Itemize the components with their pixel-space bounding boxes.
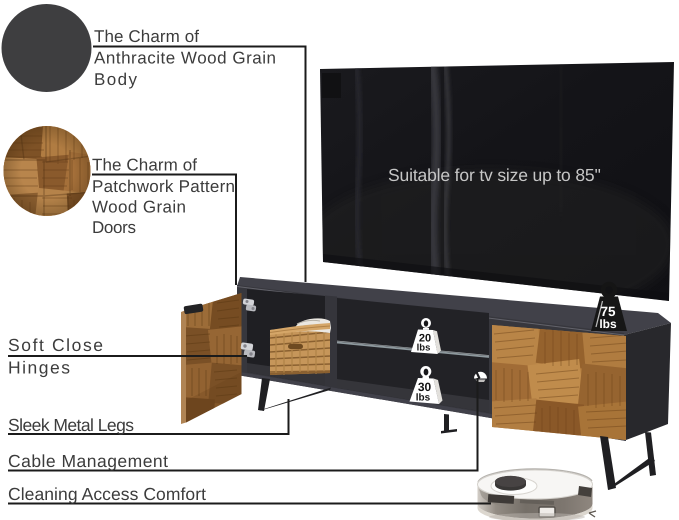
svg-text:Patchwork Pattern: Patchwork Pattern xyxy=(92,177,235,196)
svg-text:Wood Grain: Wood Grain xyxy=(92,198,186,217)
svg-text:Suitable for tv size up to 85': Suitable for tv size up to 85'' xyxy=(388,165,601,185)
svg-text:Cleaning Access Comfort: Cleaning Access Comfort xyxy=(8,484,206,504)
svg-text:Cable Management: Cable Management xyxy=(8,451,168,471)
svg-text:The Charm of: The Charm of xyxy=(94,27,199,46)
svg-text:Body: Body xyxy=(94,70,138,89)
svg-text:lbs: lbs xyxy=(417,343,431,354)
svg-text:Doors: Doors xyxy=(92,218,136,237)
svg-text:Sleek Metal Legs: Sleek Metal Legs xyxy=(8,415,134,435)
svg-text:lbs: lbs xyxy=(416,393,431,404)
svg-text:The Charm of: The Charm of xyxy=(92,156,197,175)
svg-text:Soft Close: Soft Close xyxy=(8,335,103,355)
svg-text:lbs: lbs xyxy=(599,317,617,331)
svg-text:Anthracite Wood Grain: Anthracite Wood Grain xyxy=(94,49,276,68)
svg-text:Hinges: Hinges xyxy=(8,358,70,378)
